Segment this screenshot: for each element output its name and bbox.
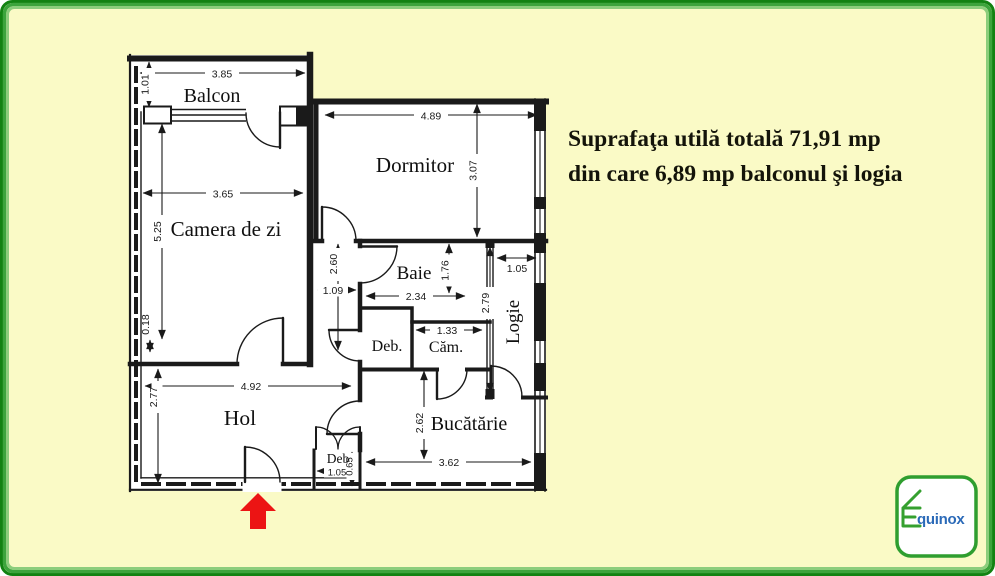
dim-hol-width: 4.92 xyxy=(241,381,262,393)
room-label-deb-bottom: Deb xyxy=(327,451,350,466)
dim-camera-height: 5.25 xyxy=(152,221,164,242)
dim-deb-width: 1.05 xyxy=(328,468,347,479)
dim-baie-height: 1.76 xyxy=(440,260,452,281)
floor-plan: 3.85 1.01 3.65 5.25 0.18 4.89 3.07 2.60 … xyxy=(130,55,546,492)
equinox-logo-text: quinox xyxy=(917,511,965,528)
dim-corridor-height: 2.60 xyxy=(328,254,340,275)
dim-hol-height: 2.77 xyxy=(148,387,160,408)
equinox-logo: quinox xyxy=(897,477,976,556)
floor-plan-image: 3.85 1.01 3.65 5.25 0.18 4.89 3.07 2.60 … xyxy=(0,0,995,576)
area-annotation-line1: Suprafaţa utilă totală 71,91 mp xyxy=(568,126,881,152)
dim-dormitor-height: 3.07 xyxy=(468,160,480,181)
room-label-dormitor: Dormitor xyxy=(376,153,454,177)
flyer-page: 3.85 1.01 3.65 5.25 0.18 4.89 3.07 2.60 … xyxy=(0,0,995,576)
room-label-logie: Logie xyxy=(503,300,524,344)
room-label-hol: Hol xyxy=(224,406,256,430)
dim-camera-offset: 0.18 xyxy=(140,314,152,335)
area-annotation-line2: din care 6,89 mp balconul şi logia xyxy=(568,161,903,187)
dim-camera-width: 3.65 xyxy=(213,189,234,201)
dim-balcon-width: 3.85 xyxy=(212,69,233,81)
room-label-balcon: Balcon xyxy=(184,85,241,107)
dim-corridor-width: 1.09 xyxy=(323,285,344,297)
dim-logie-height: 2.79 xyxy=(480,293,492,314)
dim-cam-width: 1.33 xyxy=(437,325,458,337)
room-label-deb: Deb. xyxy=(372,338,403,355)
room-label-baie: Baie xyxy=(397,263,432,284)
dim-bucatarie-height: 2.62 xyxy=(414,413,426,434)
room-label-bucatarie: Bucătărie xyxy=(431,413,508,435)
dim-dormitor-width: 4.89 xyxy=(421,111,442,123)
room-label-camera-de-zi: Camera de zi xyxy=(171,217,282,241)
dim-bucatarie-width: 3.62 xyxy=(439,457,460,469)
dim-baie-width: 2.34 xyxy=(406,291,427,303)
dim-balcon-depth: 1.01 xyxy=(140,74,152,95)
room-label-cam: Căm. xyxy=(429,339,463,356)
dim-logie-width: 1.05 xyxy=(507,263,528,275)
